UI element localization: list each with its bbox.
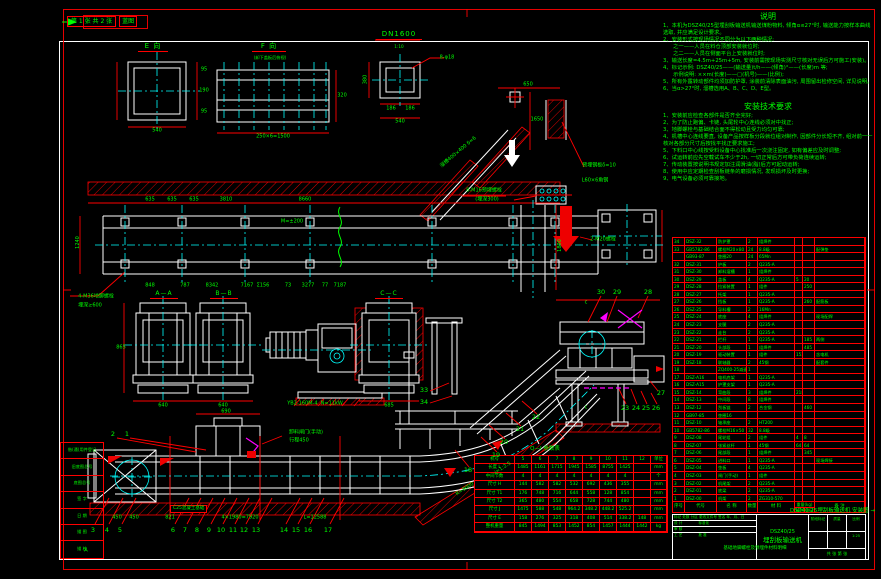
balloon-number: 10 xyxy=(217,527,225,534)
bom-name: 底梁 xyxy=(717,487,747,495)
bom-material: Q235-A xyxy=(758,336,795,344)
bom-qty: 2 xyxy=(747,261,758,269)
balloon-number: 12 xyxy=(240,527,248,534)
balloon-number: 11 xyxy=(229,527,237,534)
table-row: 33 GB5782-86 螺栓M20×80 24 8.8级 配弹垫 xyxy=(673,246,865,254)
bom-weight-total: 185 xyxy=(803,336,815,344)
dim-label: 8-φ18 xyxy=(440,56,455,61)
bom-code: DSZ-A16 xyxy=(685,374,717,382)
balloon-number: 33 xyxy=(420,387,428,394)
bom-qty: 1 xyxy=(747,351,758,359)
bom-remark xyxy=(815,344,865,352)
bom-name: 走台 xyxy=(717,329,747,337)
bom-remark: 两侧 xyxy=(815,336,865,344)
balloon-number: 21 xyxy=(516,426,524,433)
bom-code: DSZ-05 xyxy=(685,457,717,465)
bom-code: DSZ-10 xyxy=(685,419,717,427)
install-line: 1、安装前应检查各部件是否齐全完好; xyxy=(663,113,873,120)
table-row: 8 DSZ-07 张紧丝杆 1 45钢 64 64 xyxy=(673,442,865,450)
border-info-row: 旧底图总号 xyxy=(61,459,103,475)
table-row: 22 DSZ-21 栏杆 1 Q235-A 185 两侧 xyxy=(673,336,865,344)
bom-weight-each xyxy=(795,412,803,420)
bom-weight-total xyxy=(803,427,815,435)
bom-name: 栏杆 xyxy=(717,336,747,344)
bom-qty: 2 xyxy=(747,359,758,367)
bom-remark xyxy=(815,404,865,412)
bom-weight-each xyxy=(795,238,803,246)
bom-no: 29 xyxy=(673,283,685,291)
bom-qty: 1 xyxy=(747,291,758,299)
table-row: 24 DSZ-23 支腿 2 Q235-A xyxy=(673,321,865,329)
view-label-e: E 向 xyxy=(138,43,168,52)
title-block-note: 基础地脚螺栓及预埋件材料明细 xyxy=(690,547,820,552)
bom-no: 16 xyxy=(673,381,685,389)
bom-weight-total: 485 xyxy=(803,344,815,352)
bom-qty: 8 xyxy=(747,396,758,404)
border-info-row: 描 图 xyxy=(61,525,103,541)
balloon-number: 8 xyxy=(195,527,199,534)
balloon-number: 24 xyxy=(632,405,640,412)
bom-qty: 2 xyxy=(747,487,758,495)
balloon-number: 13 xyxy=(252,527,260,534)
bom-weight-each xyxy=(795,291,803,299)
bom-material: Q235-A xyxy=(758,457,795,465)
bom-no: 14 xyxy=(673,396,685,404)
param-name: 尺寸 H xyxy=(475,481,515,489)
bom-no: 7 xyxy=(673,449,685,457)
table-row: 19 DSZ-18 联轴器 2 45钢 配套件 xyxy=(673,359,865,367)
bom-qty: 2 xyxy=(747,329,758,337)
bom-name: 挡板 xyxy=(717,298,747,306)
bom-header-code: 代号 xyxy=(685,502,717,512)
bom-weight-each xyxy=(795,495,803,503)
table-row: 30 DSZ-29 盖板 4 Q235-A 5 20 xyxy=(673,276,865,284)
bom-remark xyxy=(815,381,865,389)
bom-weight-each xyxy=(795,321,803,329)
bom-name: 盖板 xyxy=(717,276,747,284)
bom-no: 33 xyxy=(673,246,685,254)
bom-weight-each xyxy=(795,336,803,344)
bom-no: 18 xyxy=(673,366,685,374)
install-line: 7、传动装置按说明书规定加注润滑油(脂)后方可起动运转; xyxy=(663,162,873,169)
table-row: 5 DSZ-04 垫板 4 Q235-A xyxy=(673,464,865,472)
dim-label: L=12588 xyxy=(304,516,327,521)
bom-code: DSZ-27 xyxy=(685,291,717,299)
balloon-number: 28 xyxy=(644,289,652,296)
bom-name: 托架 xyxy=(717,291,747,299)
dim-rot-380: 380 xyxy=(363,75,368,85)
balloon-number: 9 xyxy=(207,527,211,534)
balloon-number: 30 xyxy=(597,289,605,296)
bom-weight-total xyxy=(803,253,815,261)
balloon-number: 22 xyxy=(532,414,540,421)
bom-weight-each: 1525 xyxy=(795,351,803,359)
bom-remark xyxy=(815,374,865,382)
bom-weight-each xyxy=(795,449,803,457)
balloon-number: 15 xyxy=(292,527,300,534)
table-row: 11 DSZ-10 轴承座 2 HT200 xyxy=(673,419,865,427)
bom-qty: 2 xyxy=(747,495,758,503)
bom-weight-total xyxy=(803,291,815,299)
bom-qty: 4 xyxy=(747,464,758,472)
bom-weight-total xyxy=(803,464,815,472)
dim-label: c xyxy=(585,406,588,411)
balloon-number: 26 xyxy=(652,405,660,412)
table-row: 14 DSZ-13 中间段 8 组焊件 xyxy=(673,396,865,404)
param-unit: mm xyxy=(651,498,667,506)
install-line: 9、电气设备必须可靠接地。 xyxy=(663,176,873,183)
dim-label: 690 xyxy=(221,410,231,415)
bom-remark xyxy=(815,427,865,435)
param-name: 尺寸 E xyxy=(475,515,515,523)
bom-code: GB97-85 xyxy=(685,412,717,420)
bom-code: DSZ-04 xyxy=(685,464,717,472)
bom-name: 垫圈16 xyxy=(717,412,747,420)
dim-label: 3277 xyxy=(302,284,315,289)
bom-no: 11 xyxy=(673,419,685,427)
table-row: 6 DSZ-05 进料口 1 Q235-A 现场焊接 xyxy=(673,457,865,465)
bom-name: 护板 xyxy=(717,261,747,269)
bom-weight-each xyxy=(795,246,803,254)
sheet-corner-label: 第 1 张 共 2 张 蓝图 xyxy=(64,16,137,27)
note-line: 4、标记示例: DSZ40/25——(输送量)t/h——(倾角)°——(长度)m… xyxy=(663,65,873,72)
bom-name: 电机底架 xyxy=(717,374,747,382)
dim-label: YB2-160M-4 N=11kW xyxy=(287,402,343,407)
dim-label: 190 xyxy=(199,89,209,94)
border-info-row: 描 校 xyxy=(61,541,103,557)
table-row: 13 DSZ-12 刮板链 2 合金钢 460 xyxy=(673,404,865,412)
dim-label: c xyxy=(585,301,588,306)
bom-code: DSZ-30 xyxy=(685,268,717,276)
bom-no: 27 xyxy=(673,298,685,306)
bom-material xyxy=(758,412,795,420)
bom-code: DSZ-06 xyxy=(685,449,717,457)
bom-qty: 1 xyxy=(747,283,758,291)
note-line: 6、当α>27°时, 溜槽选用A、B、C、D、E型。 xyxy=(663,86,873,93)
bom-name: 驱动装置 xyxy=(717,351,747,359)
install-line: 2、为了防止跑偏、卡链, 头尾轮中心连线必须对中找正; xyxy=(663,120,873,127)
view-scale-dn: 1:10 xyxy=(386,45,412,49)
bom-material: Q235-A xyxy=(758,298,795,306)
corner-box-label: 蓝图 xyxy=(119,16,137,27)
bom-remark xyxy=(815,449,865,457)
table-row: 9 DSZ-08 尾轮组 2 组件 4 8 xyxy=(673,434,865,442)
bom-no: 19 xyxy=(673,359,685,367)
balloon-number: 2 xyxy=(111,431,115,438)
bom-qty: 3 xyxy=(747,389,758,397)
bom-qty: 4 xyxy=(747,276,758,284)
install-line: 6、试运转前应先空载试车不少于2h, 一切正常后方可带负荷连续运转; xyxy=(663,155,873,162)
bom-rows: 34 DSZ-32 防护罩 2 组焊件 33 GB5782-86 螺栓M20×8… xyxy=(673,238,865,502)
dim-label: 821 xyxy=(165,516,175,521)
bom-name: 尾轮组 xyxy=(717,434,747,442)
install-line: 3、地脚螺栓与基础结合面不得松动且受力均匀可靠; xyxy=(663,127,873,134)
bom-remark: 含电机 xyxy=(815,351,865,359)
table-row: 25 DSZ-24 底座 4 组焊件 现场配焊 xyxy=(673,313,865,321)
bom-remark xyxy=(815,366,865,374)
notes-title: 说明 xyxy=(663,13,873,21)
param-unit: mm xyxy=(651,481,667,489)
bom-weight-each xyxy=(795,253,803,261)
bom-qty: 1 xyxy=(747,344,758,352)
bom-material: Q235-A xyxy=(758,261,795,269)
bom-weight-total xyxy=(803,329,815,337)
bom-weight-total: 460 xyxy=(803,404,815,412)
bom-name: 联轴器 xyxy=(717,359,747,367)
bom-weight-total: 8 xyxy=(803,434,815,442)
bom-material: Q235-A xyxy=(758,276,795,284)
bom-qty: 1 xyxy=(747,336,758,344)
table-row: 3 DSZ-02 机尾架 2 Q235-A xyxy=(673,480,865,488)
param-name: 尺寸 T2 xyxy=(475,498,515,506)
drawing-title-spill: DSZ40/25埋刮板输送机 安装图 → xyxy=(790,509,875,515)
bom-material: 8.8级 xyxy=(758,427,795,435)
bom-weight-total xyxy=(803,412,815,420)
title-block-name: DSZ40/25 埋刮板输送机 xyxy=(757,515,809,559)
bom-qty: 1 xyxy=(747,457,758,465)
dim-label: 埋深≥600 xyxy=(78,304,102,309)
param-row: 尺寸 H 144 582 582 532 692 436 355 mm xyxy=(475,481,667,489)
dim-label: L60×6角钢 xyxy=(582,179,609,184)
bom-material: 45钢 xyxy=(758,442,795,450)
bom-name: 防护罩 xyxy=(717,238,747,246)
bom-name: 导料槽 xyxy=(717,306,747,314)
bom-weight-total xyxy=(803,396,815,404)
note-line: 示例说明: ××m(长度)——□(机号)——(比例); xyxy=(663,72,873,79)
param-unit: mm xyxy=(651,490,667,498)
bom-no: 15 xyxy=(673,389,685,397)
bom-weight-each xyxy=(795,283,803,291)
bom-material: 组件 xyxy=(758,434,795,442)
bom-remark xyxy=(815,238,865,246)
bom-remark xyxy=(815,487,865,495)
bom-no: 8 xyxy=(673,442,685,450)
table-row: 15 DSZ-14 弯曲段 3 组焊件 218 xyxy=(673,389,865,397)
corner-text: 第 1 张 共 2 张 xyxy=(67,16,116,27)
balloon-number: 5 xyxy=(118,527,122,534)
param-row: 尺寸 J 1475 588 548 964.2 348.2 448.2 525.… xyxy=(475,506,667,514)
bom-weight-each xyxy=(795,487,803,495)
bom-weight-total xyxy=(803,419,815,427)
magenta-flag xyxy=(600,312,608,322)
bom-code: DSZ-12 xyxy=(685,404,717,412)
balloon-number: 20 xyxy=(500,439,508,446)
bom-no: 12 xyxy=(673,412,685,420)
bom-material: 65Mn xyxy=(758,253,795,261)
bom-weight-total xyxy=(803,480,815,488)
bom-code: DSZ-14 xyxy=(685,389,717,397)
bom-remark xyxy=(815,329,865,337)
dim-label: 95 xyxy=(201,68,207,73)
bom-no: 25 xyxy=(673,313,685,321)
bom-code: DSZ-18 xyxy=(685,359,717,367)
dim-label: 540 xyxy=(395,120,405,125)
bom-qty: 2 xyxy=(747,238,758,246)
table-row: 28 DSZ-27 托架 1 Q235-A xyxy=(673,291,865,299)
param-unit: mm xyxy=(651,515,667,523)
bom-qty: 2 xyxy=(747,419,758,427)
bom-qty: 1 xyxy=(747,298,758,306)
bom-name: 支腿 xyxy=(717,321,747,329)
dim-label: 行程450 xyxy=(289,439,309,444)
bom-name: 垫板 xyxy=(717,464,747,472)
dim-label: 73 xyxy=(285,284,291,289)
table-row: 10 GB5782-86 螺栓M16×50 32 8.8级 xyxy=(673,427,865,435)
dim-label: 635 xyxy=(145,198,155,203)
param-row: 尺寸 T2 365 480 554 658 728 744 480 mm xyxy=(475,498,667,506)
bom-material: 合金钢 xyxy=(758,404,795,412)
dim-label: Σ156 xyxy=(257,284,270,289)
bom-name: 张紧丝杆 xyxy=(717,442,747,450)
dim-label: 320 xyxy=(337,94,347,99)
bom-qty: 2 xyxy=(747,306,758,314)
bom-code xyxy=(685,366,717,374)
bom-remark xyxy=(815,321,865,329)
bom-material: Q235-A xyxy=(758,321,795,329)
bom-code: DSZ-28 xyxy=(685,283,717,291)
bom-name: 拉紧装置 xyxy=(717,283,747,291)
table-row: 7 DSZ-06 尾部段 1 组焊件 345 xyxy=(673,449,865,457)
bom-weight-each xyxy=(795,306,803,314)
balloon-number: 29 xyxy=(613,289,621,296)
bom-qty: 24 xyxy=(747,253,758,261)
bom-weight-each xyxy=(795,374,803,382)
signature-row: 工 艺 批 准 xyxy=(673,533,756,538)
param-unit: kg xyxy=(651,523,667,531)
bom-name: 中间段 xyxy=(717,396,747,404)
scale-label: 比例 xyxy=(847,515,865,531)
bom-name: 头部段 xyxy=(717,344,747,352)
notes-list: 1、本机为DSZ40/25型埋刮板输送机输送煤粉物料, 倾角α≤27°时, 输送… xyxy=(663,23,873,93)
mass-value xyxy=(828,532,847,548)
bom-material: 组焊件 xyxy=(758,344,795,352)
bom-name: 进料口 xyxy=(717,457,747,465)
dim-label: 8342 xyxy=(206,284,219,289)
table-row: GB93-87 垫圈20 24 65Mn xyxy=(673,253,865,261)
bom-weight-total: 345 xyxy=(803,449,815,457)
bom-name: 卸料溜槽 xyxy=(717,268,747,276)
bom-remark xyxy=(815,472,865,480)
bom-remark xyxy=(815,412,865,420)
bom-weight-total xyxy=(803,457,815,465)
bom-no: 23 xyxy=(673,329,685,337)
bom-weight-each xyxy=(795,464,803,472)
bom-code: DSZ-25 xyxy=(685,306,717,314)
drawing-model: DSZ40/25 xyxy=(770,530,795,535)
bom-weight-each xyxy=(795,381,803,389)
table-row: 27 DSZ-26 挡板 1 Q235-A 260 配筋板 xyxy=(673,298,865,306)
border-info-row: 日 期 xyxy=(61,509,103,525)
bom-qty: 32 xyxy=(747,427,758,435)
dim-label: 预埋钢板δ=10 xyxy=(582,164,616,169)
param-unit: mm xyxy=(651,506,667,514)
install-list: 1、安装前应检查各部件是否齐全完好;2、为了防止跑偏、卡链, 头尾轮中心连线必须… xyxy=(663,113,873,183)
bom-code: DSZ-20 xyxy=(685,344,717,352)
bom-weight-total xyxy=(803,261,815,269)
border-info-row: 借(通)用件登记 xyxy=(61,443,103,459)
balloon-number: 23 xyxy=(621,405,629,412)
balloon-number: 3 xyxy=(91,527,95,534)
note-line: 之一——人员在料仓顶部安装就位时; xyxy=(663,44,873,51)
bom-weight-each xyxy=(795,404,803,412)
bom-remark: 配弹垫 xyxy=(815,246,865,254)
bom-no: 13 xyxy=(673,404,685,412)
dim-label: 4×1980=7920 xyxy=(221,516,258,521)
balloon-number: 25 xyxy=(642,405,650,412)
bom-remark: 配筋板 xyxy=(815,298,865,306)
bom-remark xyxy=(815,464,865,472)
bom-code: GB93-87 xyxy=(685,253,717,261)
install-title: 安装技术要求 xyxy=(663,103,873,111)
bom-no: 4 xyxy=(673,472,685,480)
bom-no: 26 xyxy=(673,306,685,314)
note-line: 之二——人员在侧面平台上安装就位时; xyxy=(663,51,873,58)
bom-no: 5 xyxy=(673,464,685,472)
bom-weight-total xyxy=(803,359,815,367)
bom-remark xyxy=(815,283,865,291)
bom-weight-each xyxy=(795,329,803,337)
bom-material: HT200 xyxy=(758,419,795,427)
bom-code: GB5782-86 xyxy=(685,427,717,435)
view-label-dn: DN1600 xyxy=(376,31,422,40)
bom-weight-each xyxy=(795,359,803,367)
dim-label: 8660 xyxy=(299,198,312,203)
bom-qty: 1 xyxy=(747,366,758,374)
section-label-bb: B—B xyxy=(210,291,238,299)
bom-material: Q235-A xyxy=(758,480,795,488)
table-row: 16 DSZ-A15 护罩支架 1 Q235-A xyxy=(673,381,865,389)
bom-no: 32 xyxy=(673,261,685,269)
bom-qty: 1 xyxy=(747,381,758,389)
param-unit: 个 xyxy=(651,473,667,481)
bom-name: 机尾架 xyxy=(717,480,747,488)
bom-code: DSZ-08 xyxy=(685,434,717,442)
note-line: 3、输送长度=4.5m+25m+5m, 安装前需按现场实测尺寸核对无误后方可施工… xyxy=(663,58,873,65)
bom-weight-each xyxy=(795,480,803,488)
bom-table: 34 DSZ-32 防护罩 2 组焊件 33 GB5782-86 螺栓M20×8… xyxy=(672,237,866,513)
bom-no: 2 xyxy=(673,487,685,495)
table-row: 21 DSZ-20 头部段 1 组焊件 485 xyxy=(673,344,865,352)
bom-material: 组件 xyxy=(758,351,795,359)
bom-no: 34 xyxy=(673,238,685,246)
param-name: 整机重量 xyxy=(475,523,515,531)
bom-code: DSZ-31 xyxy=(685,261,717,269)
bom-qty: 4 xyxy=(747,313,758,321)
bom-remark xyxy=(815,306,865,314)
bom-no: 1 xyxy=(673,495,685,503)
dim-label: 77 xyxy=(322,284,328,289)
bom-weight-total xyxy=(803,306,815,314)
balloon-number: 34 xyxy=(420,399,428,406)
dim-label: 685 xyxy=(384,404,394,409)
bom-weight-each: 64 xyxy=(795,442,803,450)
table-row: 26 DSZ-25 导料槽 2 16Mn xyxy=(673,306,865,314)
bom-material: 组件 xyxy=(758,283,795,291)
dim-label: 635 xyxy=(167,198,177,203)
table-row: 23 DSZ-22 走台 2 Q235-A xyxy=(673,329,865,337)
bom-name: 垫圈20 xyxy=(717,253,747,261)
bom-qty xyxy=(747,412,758,420)
param-row: 尺寸 E 158 276 325 318 408 514 338.2 148 m… xyxy=(475,515,667,523)
bom-remark: 现场配焊 xyxy=(815,313,865,321)
bom-material: Q235-A xyxy=(758,374,795,382)
bom-no: 30 xyxy=(673,276,685,284)
dim-label: 186 xyxy=(386,107,396,112)
table-row: 12 GB97-85 垫圈16 xyxy=(673,412,865,420)
dim-label: 7167 xyxy=(241,284,254,289)
bom-remark: 配套件 xyxy=(815,359,865,367)
bom-no: 6 xyxy=(673,457,685,465)
